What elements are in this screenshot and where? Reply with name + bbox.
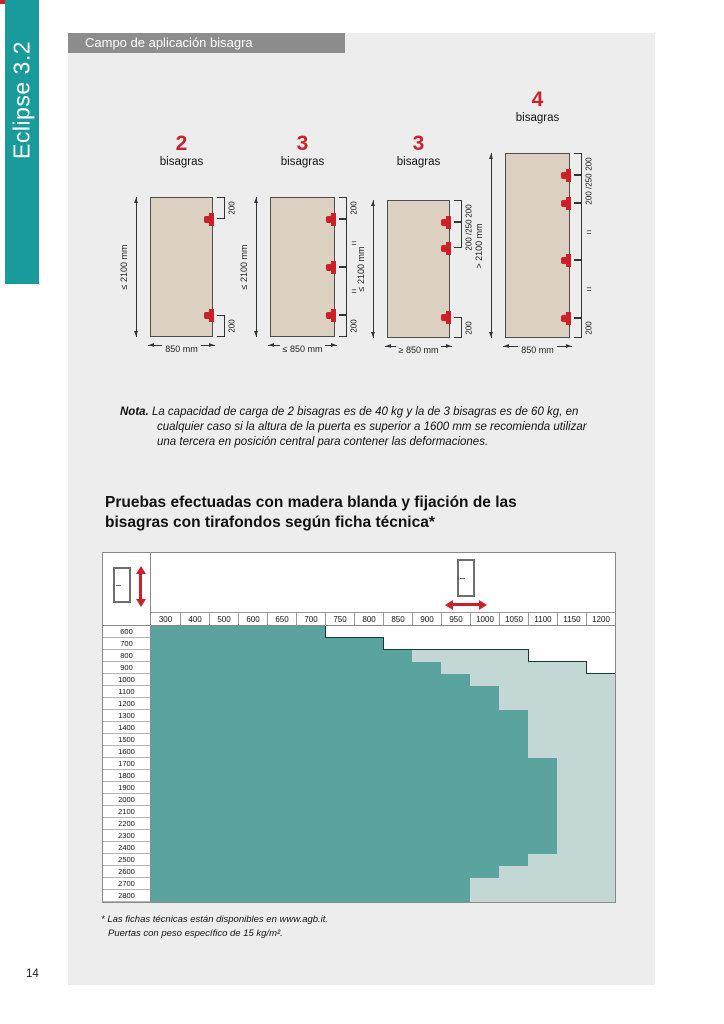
region-2-cells (151, 698, 499, 710)
column-header: 300 (151, 613, 180, 626)
hinge-spacing-bracket (574, 260, 582, 317)
width-dimension-line: 850 mm (503, 346, 572, 347)
hinge-icon (566, 197, 571, 210)
row-header: 1600 (103, 746, 151, 758)
region-2-cells (151, 866, 499, 878)
row-header: 1400 (103, 722, 151, 734)
equal-spacing-label: = (586, 227, 591, 237)
hinge-icon (446, 311, 451, 324)
hinge-spacing-bracket (454, 200, 462, 222)
sidebar-title: Eclipse 3.2 (9, 41, 36, 159)
row-header: 800 (103, 650, 151, 662)
column-header: 1050 (499, 613, 528, 626)
column-header: 400 (180, 613, 209, 626)
hinge-spacing-bracket (574, 203, 582, 260)
hinge-spacing-bracket (339, 197, 347, 219)
note-paragraph: Nota. La capacidad de carga de 2 bisagra… (120, 405, 592, 451)
section-header-title: Campo de aplicación bisagra (68, 33, 345, 53)
region-3-cells (470, 878, 615, 890)
width-arrow-icon (451, 603, 481, 606)
row-header: 1100 (103, 686, 151, 698)
door-count: 4 (470, 89, 605, 111)
row-header: 1500 (103, 734, 151, 746)
door-count-label: 3bisagras (352, 133, 485, 168)
hinge-icon (446, 242, 451, 255)
height-arrow-icon (139, 572, 142, 601)
region-2-cells (151, 674, 470, 686)
region-3-cells (499, 686, 615, 698)
region-2-cells (151, 686, 499, 698)
region-3-cells (528, 746, 615, 758)
note-label: Nota. (120, 406, 149, 418)
equal-spacing-label: = (586, 284, 591, 294)
region-3-cells (557, 758, 615, 770)
region-3-cells (412, 650, 528, 662)
region-2-cells (151, 746, 528, 758)
width-dimension-line: 850 mm (148, 345, 215, 346)
hinge-spacing-bracket (339, 267, 347, 315)
row-header: 2300 (103, 830, 151, 842)
column-header: 500 (209, 613, 238, 626)
door-height-icon (113, 567, 131, 603)
row-header: 1000 (103, 674, 151, 686)
region-2-cells (151, 842, 557, 854)
region-2-cells (151, 830, 557, 842)
door-count: 3 (235, 133, 370, 155)
door-caption: bisagras (352, 156, 485, 168)
width-legend-cell (151, 553, 615, 613)
door-height-label: ≤ 2100 mm (356, 247, 366, 292)
region-3-cells (557, 842, 615, 854)
hinge-icon (446, 216, 451, 229)
door-height-label: ≤ 2100 mm (239, 245, 249, 290)
hinge-spacing-bracket (339, 315, 347, 337)
region-2-cells (151, 854, 528, 866)
column-header: 600 (238, 613, 267, 626)
column-header: 1100 (528, 613, 557, 626)
region-2-cells (151, 650, 412, 662)
region-2-cells (151, 758, 557, 770)
door-diagram (150, 197, 213, 337)
capacity-chart: 2 3 300400500600650700750800850900950100… (102, 552, 616, 903)
column-header: 950 (441, 613, 470, 626)
row-header: 700 (103, 638, 151, 650)
section-header-bar: Campo de aplicación bisagra (68, 33, 345, 53)
hinge-spacing-bracket (454, 317, 462, 338)
region-2-cells (151, 806, 557, 818)
region-2-cells (151, 638, 383, 650)
row-header: 2600 (103, 866, 151, 878)
hinge-spacing-bracket (574, 318, 582, 338)
hinge-distance-label: 200 (465, 204, 474, 217)
door-width-icon (457, 559, 475, 597)
region-3-cells (441, 662, 586, 674)
door-diagram (505, 153, 570, 338)
column-header: 1150 (557, 613, 586, 626)
hinge-icon (331, 309, 336, 322)
region-2-cells (151, 770, 557, 782)
row-header: 1800 (103, 770, 151, 782)
region-3-cells (528, 710, 615, 722)
door-caption: bisagras (470, 112, 605, 124)
door-count: 3 (352, 133, 485, 155)
region-3-cells (557, 818, 615, 830)
row-header: 900 (103, 662, 151, 674)
door-width-label: ≤ 850 mm (280, 344, 326, 354)
width-dimension-line: ≥ 850 mm (385, 346, 452, 347)
hinge-distance-label: 200 (585, 157, 594, 170)
column-header: 900 (412, 613, 441, 626)
hinge-icon (209, 309, 214, 322)
region-2-cells (151, 818, 557, 830)
region-3-cells (557, 830, 615, 842)
row-header: 2800 (103, 890, 151, 902)
row-header: 2100 (103, 806, 151, 818)
door-count-label: 4bisagras (470, 89, 605, 124)
row-header: 2000 (103, 794, 151, 806)
hinge-spacing-bracket (574, 153, 582, 175)
hinge-distance-label: 200 (465, 321, 474, 334)
door-width-label: 850 mm (162, 344, 201, 354)
region-3-cells (528, 854, 615, 866)
hinge-spacing-bracket (217, 197, 225, 219)
hinge-spacing-bracket (339, 219, 347, 267)
region-2-cells (151, 890, 470, 902)
row-header: 1700 (103, 758, 151, 770)
door-diagram (387, 200, 450, 338)
door-count: 2 (115, 133, 248, 155)
page-number: 14 (26, 968, 39, 980)
door-diagram (270, 197, 335, 337)
door-height-label: ≤ 2100 mm (119, 245, 129, 290)
region-2-cells (151, 626, 325, 638)
column-header: 800 (354, 613, 383, 626)
door-count-label: 2bisagras (115, 133, 248, 168)
region-3-cells (470, 674, 615, 686)
region-3-cells (470, 890, 615, 902)
column-header: 850 (383, 613, 412, 626)
column-header: 750 (325, 613, 354, 626)
height-legend-cell (103, 553, 151, 626)
hinge-icon (566, 169, 571, 182)
door-caption: bisagras (235, 156, 370, 168)
row-header: 1900 (103, 782, 151, 794)
region-3-cells (557, 782, 615, 794)
region-2-cells (151, 782, 557, 794)
door-caption: bisagras (115, 156, 248, 168)
content-area: Campo de aplicación bisagra 2bisagras≤ 2… (68, 33, 655, 985)
column-header: 1200 (586, 613, 615, 626)
hinge-icon (331, 261, 336, 274)
page-container: { "page": { "number": "14" }, "sidebar":… (0, 0, 724, 1024)
door-width-label: 850 mm (518, 345, 557, 355)
footnote-line-2: Puertas con peso específico de 15 kg/m². (101, 927, 328, 941)
width-dimension-line: ≤ 850 mm (268, 345, 337, 346)
chart-section-title: Pruebas efectuadas con madera blanda y f… (105, 493, 577, 533)
column-header: 1000 (470, 613, 499, 626)
hinge-icon (566, 254, 571, 267)
hinge-distance-label: 200 (228, 202, 237, 215)
hinge-distance-label: 200 /250 (585, 173, 594, 204)
hinge-distance-label: 200 (585, 321, 594, 334)
door-height-label: > 2100 mm (474, 223, 484, 268)
row-header: 2500 (103, 854, 151, 866)
region-3-cells (557, 794, 615, 806)
column-header: 700 (296, 613, 325, 626)
region-3-cells (499, 866, 615, 878)
row-header: 2200 (103, 818, 151, 830)
footnote: * Las fichas técnicas están disponibles … (101, 913, 328, 942)
region-3-cells (528, 722, 615, 734)
door-width-label: ≥ 850 mm (396, 345, 442, 355)
row-header: 2700 (103, 878, 151, 890)
footnote-line-1: * Las fichas técnicas están disponibles … (101, 913, 328, 927)
sidebar: Eclipse 3.2 (5, 0, 39, 284)
region-3-cells (557, 770, 615, 782)
row-header: 1300 (103, 710, 151, 722)
region-2-cells (151, 878, 470, 890)
row-header: 2400 (103, 842, 151, 854)
hinge-distance-label: 200 (228, 319, 237, 332)
hinge-distance-label: 200 (350, 319, 359, 332)
hinge-distance-label: 200 (350, 202, 359, 215)
region-3-cells (499, 698, 615, 710)
region-2-cells (151, 662, 441, 674)
region-3-cells (557, 806, 615, 818)
door-count-label: 3bisagras (235, 133, 370, 168)
hinge-spacing-bracket (217, 315, 225, 337)
hinge-icon (331, 213, 336, 226)
row-header: 600 (103, 626, 151, 638)
row-header: 1200 (103, 698, 151, 710)
region-2-cells (151, 710, 528, 722)
region-3-cells (528, 734, 615, 746)
hinge-icon (209, 213, 214, 226)
region-2-cells (151, 722, 528, 734)
region-2-cells (151, 734, 528, 746)
column-header: 650 (267, 613, 296, 626)
hinge-icon (566, 312, 571, 325)
note-text: La capacidad de carga de 2 bisagras es d… (149, 406, 587, 448)
region-2-cells (151, 794, 557, 806)
